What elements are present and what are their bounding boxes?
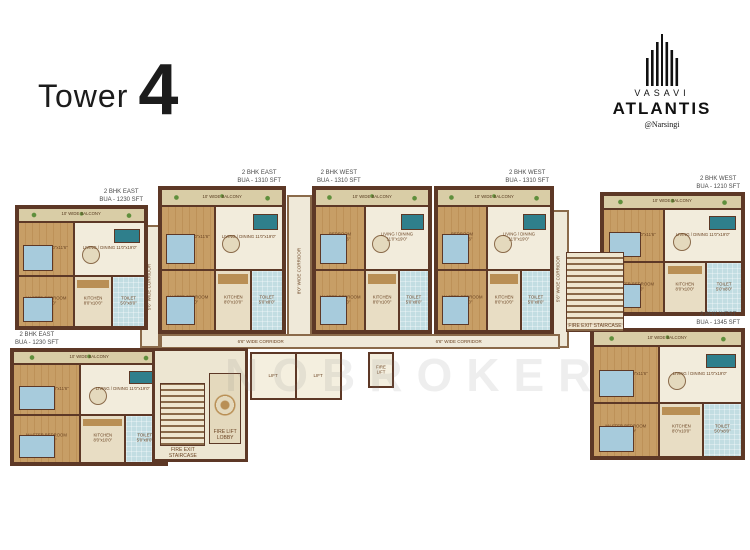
room-label: MASTER BEDROOM 11'0"x12'0" [320, 296, 361, 305]
room-label: MASTER BEDROOM 11'0"x12'0" [19, 434, 74, 443]
unit-rooms: 10' WIDE BALCONYBEDROOM 10'0"x11'6"LIVIN… [593, 331, 742, 457]
room-balcony: 10' WIDE BALCONY [315, 189, 429, 206]
room-label: MASTER BEDROOM 11'0"x12'0" [442, 296, 483, 305]
room-bed: BEDROOM 10'0"x11'6" [593, 346, 659, 403]
room-label: TOILET 5'0"x8'0" [254, 296, 279, 305]
room-label: BEDROOM 10'0"x11'6" [320, 233, 361, 242]
unit-label: 2 BHK WESTBUA - 1310 SFT [317, 170, 361, 186]
unit-7: 2 BHK WESTBUA - 1345 SFT10' WIDE BALCONY… [590, 328, 745, 460]
room-bed: MASTER BEDROOM 11'0"x12'0" [593, 403, 659, 457]
room-living: LIVING / DINING 11'0"x19'0" [487, 206, 551, 270]
room-balcony: 10' WIDE BALCONY [18, 208, 145, 222]
unit-rooms: 10' WIDE BALCONYBEDROOM 10'0"x11'6"LIVIN… [13, 351, 165, 463]
unit-rooms: 10' WIDE BALCONYBEDROOM 10'0"x11'6"LIVIN… [161, 189, 283, 331]
room-label: LIVING / DINING 11'0"x19'0" [493, 233, 546, 242]
unit-1: 2 BHK EASTBUA - 1230 SFT10' WIDE BALCONY… [15, 205, 148, 330]
corridor-4: 6'6" WIDE CORRIDOR6'6" WIDE CORRIDOR [160, 334, 560, 349]
corridor-label: 6'6" WIDE CORRIDOR [238, 339, 284, 344]
room-label: TOILET 5'0"x8'0" [707, 425, 738, 434]
room-living: LIVING / DINING 11'0"x19'0" [664, 209, 742, 262]
unit-label: 2 BHK EASTBUA - 1230 SFT [99, 189, 143, 205]
room-label: KITCHEN 8'0"x10'0" [668, 283, 702, 292]
room-label: 10' WIDE BALCONY [69, 355, 108, 360]
room-label: TOILET 5'0"x8'0" [115, 297, 141, 306]
room-label: KITCHEN 8'0"x10'0" [84, 434, 121, 443]
room-label: BEDROOM 10'0"x11'6" [604, 372, 648, 377]
room-bed: BEDROOM 10'0"x11'6" [161, 206, 215, 270]
room-label: MASTER BEDROOM 11'0"x12'0" [23, 297, 69, 306]
room-kitchen: KITCHEN 8'0"x10'0" [365, 270, 399, 331]
fire-lift-lobby-label: FIRE LIFT LOBBY [210, 429, 240, 443]
room-living: LIVING / DINING 11'0"x19'0" [215, 206, 283, 270]
room-label: LIVING / DINING 11'0"x19'0" [222, 236, 276, 241]
room-label: KITCHEN 8'0"x10'0" [78, 297, 109, 306]
room-kitchen: KITCHEN 8'0"x10'0" [215, 270, 252, 331]
room-label: LIVING / DINING 11'0"x19'0" [676, 233, 730, 238]
fire-exit-staircase: FIRE EXIT STAIRCASE [160, 383, 205, 446]
room-kitchen: KITCHEN 8'0"x10'0" [74, 276, 112, 327]
room-bed: BEDROOM 10'0"x11'6" [437, 206, 487, 270]
unit-rooms: 10' WIDE BALCONYBEDROOM 10'0"x11'6"LIVIN… [18, 208, 145, 327]
room-label: LIVING / DINING 11'0"x19'0" [371, 233, 424, 242]
lift-1: LIFT [250, 352, 297, 400]
fire-lift: FIRE LIFT [368, 352, 394, 388]
unit-area: BUA - 1310 SFT [505, 178, 549, 186]
room-label: BEDROOM 10'0"x11'6" [24, 247, 68, 252]
room-label: 10' WIDE BALCONY [648, 336, 687, 341]
room-living: LIVING / DINING 11'0"x19'0" [74, 222, 145, 276]
corridor-label: 6'6" WIDE CORRIDOR [436, 339, 482, 344]
room-label: 10' WIDE BALCONY [474, 195, 513, 200]
room-bed: MASTER BEDROOM 11'0"x12'0" [437, 270, 487, 331]
room-toilet: TOILET 5'0"x8'0" [703, 403, 742, 457]
room-toilet: TOILET 5'0"x8'0" [521, 270, 551, 331]
unit-4: 2 BHK WESTBUA - 1310 SFT10' WIDE BALCONY… [434, 186, 554, 334]
room-label: BEDROOM 10'0"x11'6" [612, 233, 656, 238]
right-fire-exit-staircase-label: FIRE EXIT STAIRCASE [567, 323, 623, 329]
room-toilet: TOILET 5'0"x8'0" [706, 262, 742, 313]
room-kitchen: KITCHEN 8'0"x10'0" [664, 262, 706, 313]
unit-6: 2 BHK EASTBUA - 1230 SFT10' WIDE BALCONY… [10, 348, 168, 466]
unit-label: 2 BHK WESTBUA - 1210 SFT [696, 176, 740, 192]
unit-area: BUA - 1345 SFT [696, 320, 740, 328]
room-label: 10' WIDE BALCONY [352, 195, 391, 200]
room-label: BEDROOM 10'0"x11'6" [166, 236, 210, 241]
fire-lift-label: FIRE LIFT [372, 365, 391, 375]
room-label: KITCHEN 8'0"x10'0" [663, 425, 699, 434]
room-label: KITCHEN 8'0"x10'0" [218, 296, 247, 305]
room-balcony: 10' WIDE BALCONY [603, 195, 742, 209]
unit-type: 2 BHK WEST [696, 312, 740, 320]
room-bed: MASTER BEDROOM 11'0"x12'0" [161, 270, 215, 331]
room-toilet: TOILET 5'0"x8'0" [251, 270, 283, 331]
room-label: MASTER BEDROOM 11'0"x12'0" [599, 425, 653, 434]
room-bed: BEDROOM 10'0"x11'6" [18, 222, 74, 276]
room-toilet: TOILET 5'0"x8'0" [112, 276, 145, 327]
lift-bank: LIFTLIFT [250, 352, 340, 400]
room-label: BEDROOM 10'0"x11'6" [25, 387, 69, 392]
unit-area: BUA - 1230 SFT [99, 197, 143, 205]
corridor-label: 8'0" WIDE CORRIDOR [297, 248, 302, 294]
room-balcony: 10' WIDE BALCONY [437, 189, 551, 206]
unit-area: BUA - 1230 SFT [15, 340, 59, 348]
room-label: TOILET 5'0"x8'0" [524, 296, 547, 305]
corridor-2: 8'0" WIDE CORRIDOR [287, 195, 312, 347]
unit-3: 2 BHK WESTBUA - 1310 SFT10' WIDE BALCONY… [312, 186, 432, 334]
room-label: 10' WIDE BALCONY [202, 195, 241, 200]
room-toilet: TOILET 5'0"x8'0" [399, 270, 429, 331]
lift-label: LIFT [314, 373, 323, 378]
lift-2: LIFT [295, 352, 342, 400]
room-kitchen: KITCHEN 8'0"x10'0" [80, 415, 126, 463]
room-balcony: 10' WIDE BALCONY [593, 331, 742, 346]
unit-2: 2 BHK EASTBUA - 1310 SFT10' WIDE BALCONY… [158, 186, 286, 334]
unit-type: 2 BHK WEST [696, 176, 740, 184]
room-label: TOILET 5'0"x8'0" [402, 296, 425, 305]
room-bed: MASTER BEDROOM 11'0"x12'0" [18, 276, 74, 327]
lift-label: LIFT [269, 373, 278, 378]
unit-label: 2 BHK EASTBUA - 1310 SFT [237, 170, 281, 186]
room-kitchen: KITCHEN 8'0"x10'0" [487, 270, 521, 331]
floor-plan: NOBROKER FIRE EXIT STAIRCASE FIRE LIFT L… [0, 0, 750, 550]
right-fire-exit-staircase: FIRE EXIT STAIRCASE [566, 252, 624, 332]
room-label: LIVING / DINING 11'0"x19'0" [95, 387, 149, 392]
unit-type: 2 BHK EAST [99, 189, 143, 197]
room-balcony: 10' WIDE BALCONY [161, 189, 283, 206]
unit-area: BUA - 1310 SFT [237, 178, 281, 186]
fire-lift-lobby: FIRE LIFT LOBBY [209, 373, 241, 444]
unit-type: 2 BHK WEST [505, 170, 549, 178]
room-label: KITCHEN 8'0"x10'0" [491, 296, 518, 305]
unit-label: 2 BHK WESTBUA - 1345 SFT [696, 312, 740, 328]
fire-exit-staircase-label: FIRE EXIT STAIRCASE [161, 447, 204, 459]
room-living: LIVING / DINING 11'0"x19'0" [659, 346, 742, 403]
unit-type: 2 BHK EAST [15, 332, 59, 340]
room-bed: BEDROOM 10'0"x11'6" [315, 206, 365, 270]
unit-type: 2 BHK EAST [237, 170, 281, 178]
unit-area: BUA - 1210 SFT [696, 184, 740, 192]
room-label: LIVING / DINING 11'0"x19'0" [82, 247, 136, 252]
room-label: KITCHEN 8'0"x10'0" [369, 296, 396, 305]
unit-area: BUA - 1310 SFT [317, 178, 361, 186]
room-label: MASTER BEDROOM 11'0"x12'0" [166, 296, 210, 305]
corridor-label: 5'6" WIDE CORRIDOR [556, 256, 561, 302]
unit-label: 2 BHK EASTBUA - 1230 SFT [15, 332, 59, 348]
room-label: 10' WIDE BALCONY [653, 200, 692, 205]
unit-type: 2 BHK WEST [317, 170, 361, 178]
room-label: BEDROOM 10'0"x11'6" [442, 233, 483, 242]
room-bed: MASTER BEDROOM 11'0"x12'0" [315, 270, 365, 331]
room-label: TOILET 5'0"x8'0" [709, 283, 738, 292]
central-core: FIRE EXIT STAIRCASE FIRE LIFT LOBBY [152, 348, 248, 462]
unit-rooms: 10' WIDE BALCONYBEDROOM 10'0"x11'6"LIVIN… [315, 189, 429, 331]
unit-rooms: 10' WIDE BALCONYBEDROOM 10'0"x11'6"LIVIN… [437, 189, 551, 331]
unit-label: 2 BHK WESTBUA - 1310 SFT [505, 170, 549, 186]
room-label: LIVING / DINING 11'0"x19'0" [673, 372, 727, 377]
room-label: 10' WIDE BALCONY [62, 213, 101, 218]
room-kitchen: KITCHEN 8'0"x10'0" [659, 403, 704, 457]
room-living: LIVING / DINING 11'0"x19'0" [365, 206, 429, 270]
room-bed: MASTER BEDROOM 11'0"x12'0" [13, 415, 80, 463]
room-bed: BEDROOM 10'0"x11'6" [13, 364, 80, 414]
room-balcony: 10' WIDE BALCONY [13, 351, 165, 364]
corridor-label: 5'6" WIDE CORRIDOR [147, 263, 152, 309]
